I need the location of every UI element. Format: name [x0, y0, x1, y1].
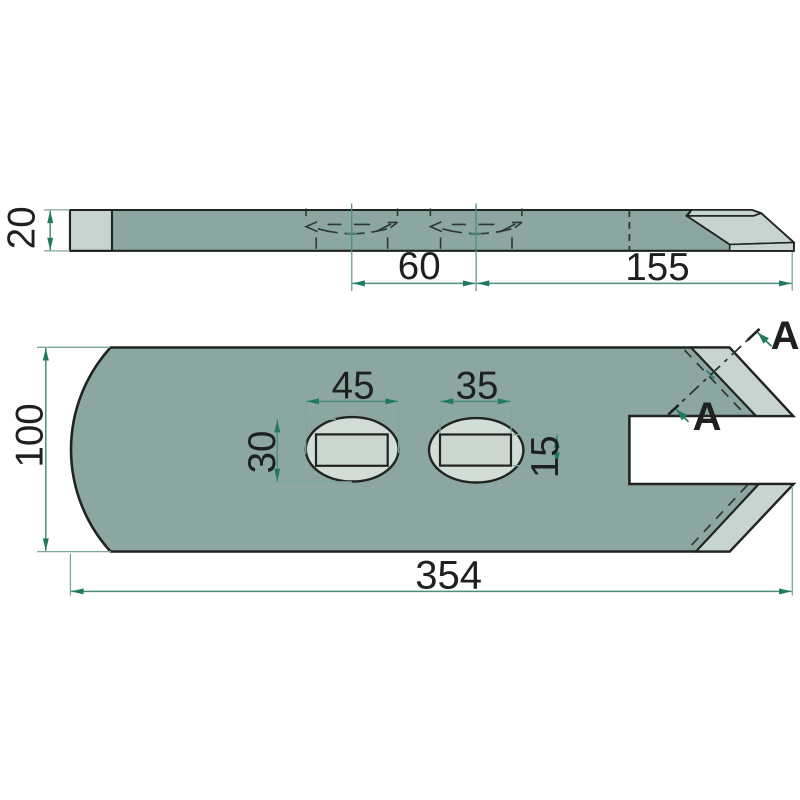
svg-text:30: 30	[241, 431, 284, 474]
svg-text:155: 155	[625, 246, 689, 289]
svg-text:20: 20	[1, 206, 44, 249]
svg-text:354: 354	[415, 554, 482, 598]
svg-text:A: A	[693, 395, 722, 439]
svg-text:15: 15	[524, 435, 567, 478]
svg-text:60: 60	[398, 245, 441, 288]
svg-text:A: A	[771, 314, 800, 358]
svg-text:35: 35	[456, 364, 499, 407]
svg-text:100: 100	[9, 403, 52, 467]
svg-text:45: 45	[332, 364, 375, 407]
